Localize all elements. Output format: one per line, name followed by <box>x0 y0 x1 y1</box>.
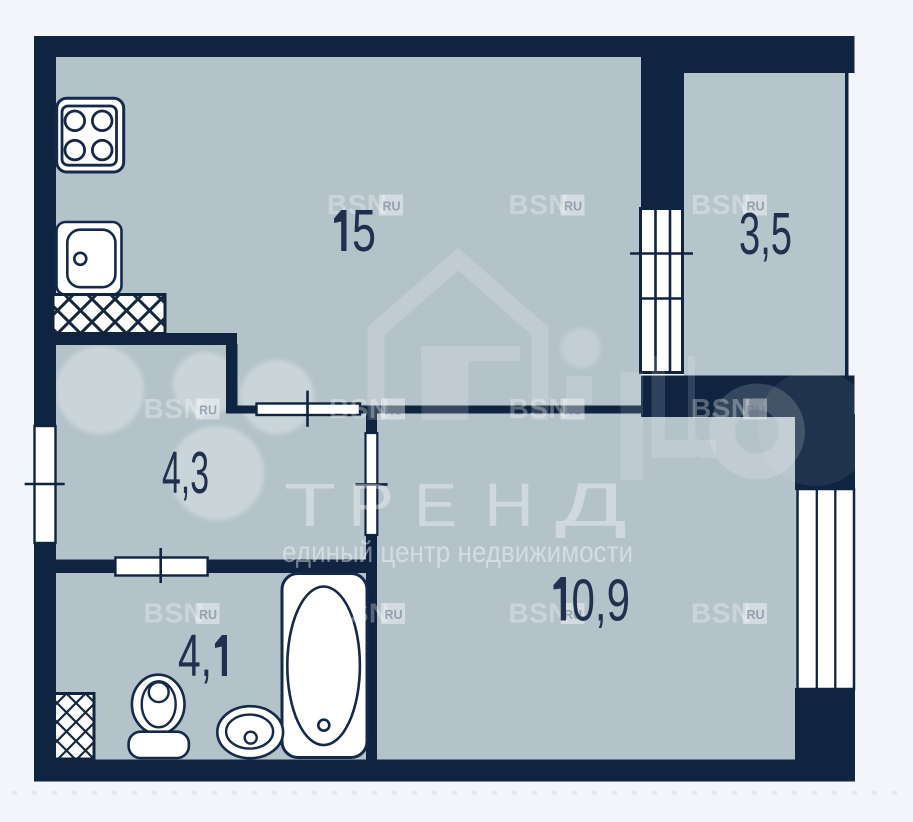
svg-text:4,3: 4,3 <box>162 439 209 506</box>
svg-text:4,: 4, <box>178 622 212 689</box>
svg-text:Р: Р <box>348 471 394 539</box>
svg-text:3,5: 3,5 <box>739 200 792 267</box>
svg-text:Н: Н <box>484 471 534 539</box>
svg-text:5: 5 <box>352 197 376 264</box>
svg-text:Д: Д <box>555 471 627 539</box>
svg-text:Т: Т <box>284 471 336 539</box>
svg-text:Е: Е <box>414 471 457 539</box>
svg-text:0,9: 0,9 <box>572 567 631 634</box>
svg-text:единый центр недвижимости: единый центр недвижимости <box>282 536 633 569</box>
